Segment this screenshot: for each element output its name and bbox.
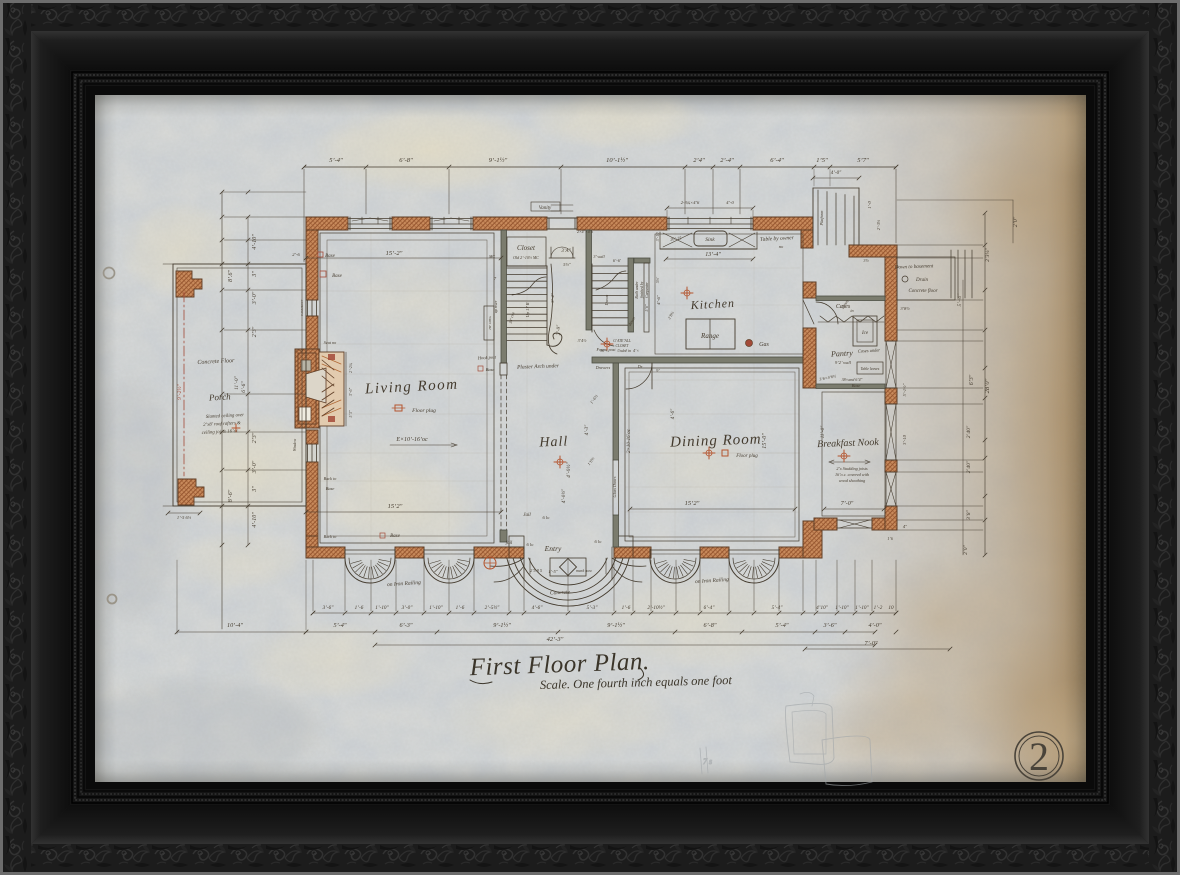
svg-text:Base: Base (332, 274, 343, 279)
svg-text:E×10’-16’oc: E×10’-16’oc (395, 437, 428, 443)
svg-text:6 lo: 6 lo (543, 515, 551, 520)
svg-text:5’-½": 5’-½" (956, 293, 963, 307)
svg-text:4": 4" (903, 524, 907, 529)
svg-text:3’-0": 3’-0" (252, 460, 258, 474)
svg-text:9’-1½": 9’-1½" (489, 157, 508, 164)
svg-text:Range: Range (700, 332, 719, 340)
svg-text:2’3¼": 2’3¼" (985, 247, 991, 261)
svg-text:1 in: 1 in (625, 348, 631, 353)
svg-text:4’10": 4’10" (816, 604, 829, 611)
svg-text:wood sheathing: wood sheathing (839, 478, 865, 483)
svg-text:2’x Studding joists: 2’x Studding joists (836, 466, 868, 471)
svg-text:3’-6": 3’-6" (348, 388, 353, 397)
svg-text:finished by: finished by (640, 281, 644, 298)
svg-text:3’-10: 3’-10 (902, 434, 907, 444)
svg-text:10’-1½": 10’-1½" (606, 157, 628, 164)
svg-text:3’-4": 3’-4" (550, 293, 555, 302)
svg-text:Floor plug: Floor plug (735, 454, 758, 459)
svg-text:5½’: 5½’ (655, 276, 660, 283)
svg-text:Pantry: Pantry (830, 348, 854, 358)
svg-text:Floor plug: Floor plug (411, 408, 436, 414)
svg-text:Breakfast Nook: Breakfast Nook (817, 437, 879, 450)
svg-text:Drawers: Drawers (595, 365, 611, 370)
svg-text:9’2’ wall: 9’2’ wall (835, 360, 852, 365)
svg-text:4’-0½": 4’-0½" (562, 488, 567, 503)
svg-text:2’0": 2’0" (963, 544, 969, 554)
svg-text:Entry: Entry (544, 544, 562, 553)
svg-text:2’40": 2’40" (965, 425, 972, 438)
svg-text:Base: Base (326, 486, 335, 491)
svg-text:Gas: Gas (759, 342, 769, 348)
svg-text:MC: MC (488, 254, 495, 259)
svg-text:2×4’×4’6: 2×4’×4’6 (577, 229, 593, 234)
svg-text:15’2": 15’2" (685, 500, 700, 507)
svg-text:1’-2: 1’-2 (874, 605, 883, 611)
svg-text:1’-6: 1’-6 (355, 605, 364, 611)
svg-text:Jail: Jail (523, 513, 531, 518)
svg-text:4’-0": 4’-0" (869, 622, 882, 629)
svg-text:8’-6": 8’-6" (228, 489, 234, 502)
svg-text:no: no (779, 244, 784, 249)
svg-text:4’-10": 4’-10" (251, 512, 258, 528)
svg-text:2’4": 2’4" (693, 157, 705, 164)
svg-text:6 lo: 6 lo (595, 539, 603, 544)
svg-text:2’-4": 2’-4" (720, 157, 734, 164)
svg-text:2: 2 (1029, 734, 1049, 779)
svg-text:2’-3½: 2’-3½ (876, 219, 881, 230)
svg-text:4’-0: 4’-0 (726, 200, 734, 205)
svg-text:2’-6: 2’-6 (292, 252, 300, 257)
svg-text:5’-4": 5’-4" (772, 604, 784, 611)
svg-text:Drain: Drain (915, 278, 928, 283)
svg-text:Window: Window (293, 438, 297, 451)
svg-text:6’-8": 6’-8" (399, 157, 413, 164)
svg-text:Hook post: Hook post (477, 354, 497, 360)
svg-text:Sink: Sink (705, 237, 715, 243)
svg-text:Back to: Back to (324, 476, 337, 481)
svg-text:4’-0": 4’-0" (831, 171, 842, 176)
svg-text:Ice: Ice (861, 331, 869, 336)
svg-text:1’-10": 1’-10" (375, 605, 389, 611)
svg-text:3’8": 3’8" (966, 509, 972, 520)
svg-text:1’-10": 1’-10" (429, 605, 443, 611)
svg-text:Concrete: Concrete (550, 589, 571, 596)
svg-text:5’-1½": 5’-1½" (902, 384, 907, 397)
svg-text:Back to: Back to (324, 534, 337, 539)
svg-text:8’.6": 8’.6" (228, 270, 234, 282)
svg-text:Carpenter: Carpenter (645, 282, 649, 298)
svg-text:9’: 9’ (656, 368, 660, 373)
svg-text:2’-10½": 2’-10½" (647, 604, 665, 611)
svg-text:up riser: up riser (493, 300, 498, 313)
svg-text:2’0": 2’0" (1013, 216, 1019, 227)
svg-text:4’-3": 4’-3" (585, 424, 590, 435)
svg-text:6’-6’: 6’-6’ (613, 258, 622, 263)
svg-text:28’0": 28’0" (984, 378, 991, 393)
svg-text:7’-0": 7’-0" (841, 501, 854, 507)
svg-text:16’o.c. covered with: 16’o.c. covered with (835, 472, 869, 477)
svg-text:Base: Base (325, 254, 336, 259)
svg-text:3’-0: 3’-0 (295, 348, 303, 353)
svg-text:7’-0": 7’-0" (865, 640, 878, 647)
svg-text:5’3": 5’3" (348, 410, 353, 417)
svg-text:Dr: Dr (637, 364, 643, 369)
svg-text:Table leaves: Table leaves (861, 367, 880, 371)
svg-text:6’-4": 6’-4" (704, 604, 716, 611)
svg-text:1’-10": 1’-10" (855, 605, 869, 611)
svg-text:1’-6: 1’-6 (622, 605, 631, 611)
svg-text:7 s: 7 s (703, 757, 712, 766)
svg-text:6’-4": 6’-4" (770, 157, 784, 164)
svg-text:4’-10": 4’-10" (251, 234, 258, 250)
svg-text:1’-0: 1’-0 (867, 201, 872, 209)
svg-text:Dining Room: Dining Room (669, 431, 762, 450)
svg-text:G’ATE’ALL: G’ATE’ALL (613, 339, 630, 343)
svg-text:3’-0": 3’-0" (402, 605, 414, 611)
svg-text:15’2": 15’2" (388, 503, 403, 510)
svg-text:2-3¾×4’6: 2-3¾×4’6 (681, 200, 700, 205)
svg-text:4’-6": 4’-6" (532, 604, 544, 611)
svg-text:5’-4": 5’-4" (776, 622, 789, 629)
svg-text:4’-6": 4’-6" (656, 295, 661, 304)
svg-text:Closet: Closet (517, 244, 536, 252)
svg-text:5½": 5½" (563, 262, 571, 267)
svg-text:mark now: mark now (576, 568, 592, 573)
svg-text:2×10-16’oc: 2×10-16’oc (627, 428, 632, 453)
svg-text:Up 17 R: Up 17 R (525, 302, 530, 317)
svg-text:13’-4": 13’-4" (705, 251, 721, 258)
svg-text:1’5": 1’5" (816, 157, 828, 164)
svg-text:4’×: 4’× (633, 348, 639, 353)
svg-text:foil: foil (506, 541, 513, 546)
svg-text:15’-2": 15’-2" (386, 250, 403, 257)
svg-text:Concrete floor: Concrete floor (908, 289, 937, 294)
svg-text:4’-0½": 4’-0½" (565, 462, 572, 478)
svg-text:1’-6: 1’-6 (456, 605, 465, 611)
svg-text:Hall: Hall (538, 435, 568, 451)
svg-text:Down: Down (604, 294, 609, 307)
svg-text:2’3": 2’3" (252, 432, 258, 443)
svg-text:Platform: Platform (819, 211, 824, 227)
svg-text:15’-0": 15’-0" (762, 433, 768, 449)
svg-text:2’40": 2’40" (965, 460, 972, 473)
svg-text:1’-10": 1’-10" (835, 605, 849, 611)
svg-text:4’-6": 4’-6" (671, 408, 676, 419)
svg-text:Old 2’-10½ MC: Old 2’-10½ MC (513, 255, 539, 260)
svg-text:Base: Base (390, 534, 401, 539)
svg-text:3’-6": 3’-6" (323, 605, 335, 611)
svg-text:Found post: Found post (596, 347, 617, 352)
svg-text:5’-4": 5’-4" (329, 157, 343, 164)
svg-text:3½: 3½ (863, 258, 869, 263)
svg-text:5’-4": 5’-4" (334, 622, 347, 629)
svg-text:1’-5 6½: 1’-5 6½ (177, 515, 192, 520)
svg-text:6 lo: 6 lo (527, 542, 535, 547)
svg-text:11’-0": 11’-0" (821, 425, 826, 438)
svg-text:11’-0": 11’-0" (234, 375, 240, 390)
svg-text:3’ wall: 3’ wall (593, 254, 605, 259)
svg-text:Glass Doors: Glass Doors (612, 476, 617, 497)
svg-text:2’-2¾: 2’-2¾ (348, 363, 353, 373)
svg-text:Base: Base (486, 367, 495, 372)
svg-text:9’-2½": 9’-2½" (176, 384, 183, 400)
svg-text:5’7": 5’7" (857, 157, 869, 164)
svg-text:3’-0": 3’-0" (252, 291, 258, 305)
svg-text:9’-1½": 9’-1½" (493, 622, 511, 629)
svg-text:3’A": 3’A" (561, 249, 571, 254)
svg-text:2’3": 2’3" (252, 326, 258, 337)
svg-text:2’5 8 5: 2’5 8 5 (530, 568, 542, 573)
svg-text:3": 3" (252, 271, 258, 278)
svg-text:6’3": 6’3" (969, 374, 975, 385)
svg-text:10: 10 (888, 605, 894, 611)
svg-text:6’-6": 6’-6" (241, 381, 247, 393)
svg-text:5’-3": 5’-3" (587, 605, 599, 611)
svg-text:Vanity: Vanity (539, 206, 552, 211)
svg-text:Base: Base (852, 383, 861, 388)
svg-text:38×and 6’4": 38×and 6’4" (842, 377, 863, 382)
svg-text:3’-10: 3’-10 (655, 233, 660, 242)
svg-text:3’-6": 3’-6" (823, 622, 837, 629)
svg-text:2’-9": 2’-9" (557, 324, 562, 335)
svg-text:42’-3": 42’-3" (547, 636, 564, 643)
svg-text:6’-3": 6’-3" (400, 622, 413, 629)
svg-text:2’-5½": 2’-5½" (485, 604, 501, 611)
svg-text:1’6: 1’6 (887, 536, 893, 541)
svg-text:9’-1½": 9’-1½" (607, 622, 625, 629)
svg-text:1’-5": 1’-5" (548, 569, 557, 574)
svg-text:3’8½: 3’8½ (900, 306, 910, 311)
svg-text:3’4½: 3’4½ (578, 338, 588, 343)
svg-text:Kitchen: Kitchen (689, 296, 735, 312)
svg-text:Built under: Built under (635, 281, 639, 299)
svg-text:in: in (850, 308, 853, 313)
svg-text:6’-8": 6’-8" (704, 622, 717, 629)
svg-text:5’6": 5’6" (644, 304, 649, 311)
svg-text:HT 100¾: HT 100¾ (488, 316, 492, 331)
svg-text:Porch: Porch (208, 391, 232, 402)
svg-text:3": 3" (252, 486, 258, 493)
svg-text:10’-4": 10’-4" (227, 622, 243, 629)
svg-text:Seat no: Seat no (324, 340, 336, 345)
